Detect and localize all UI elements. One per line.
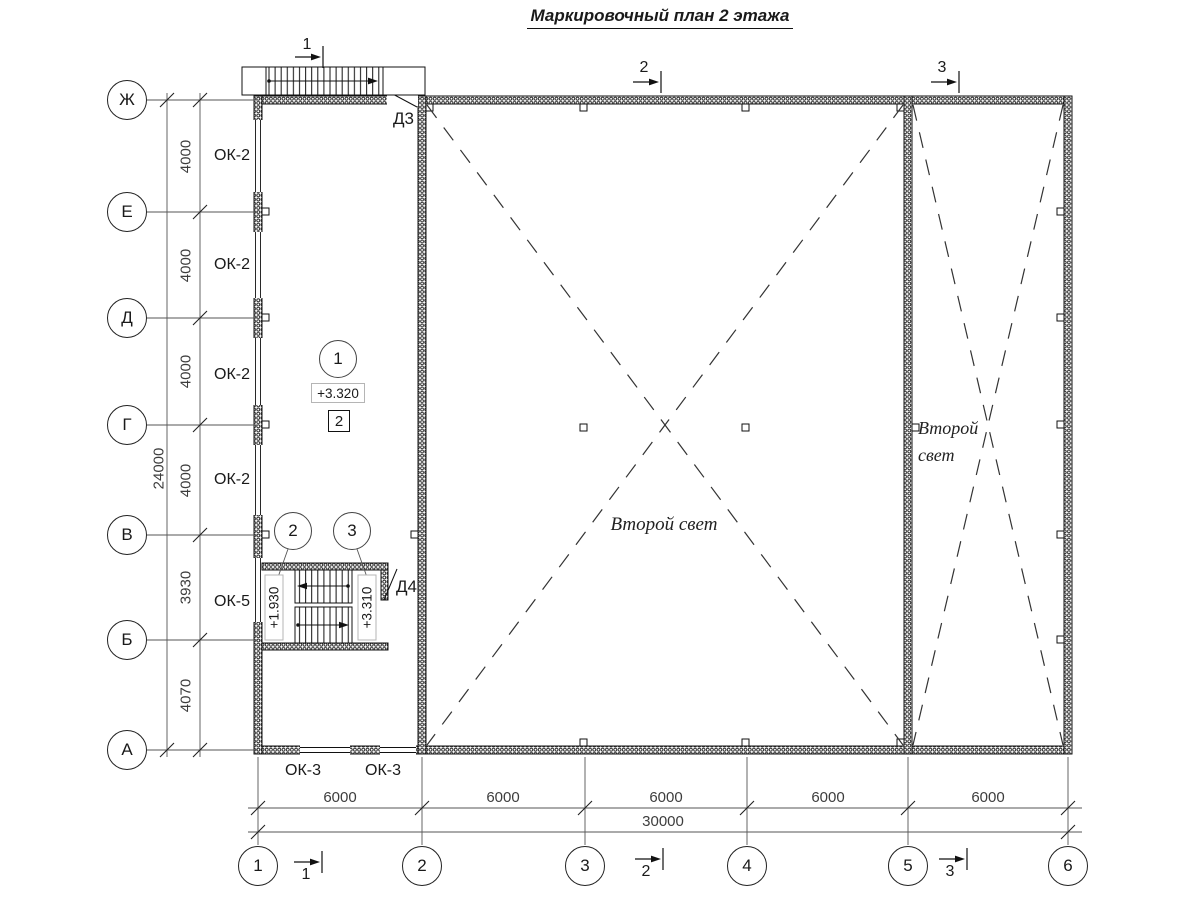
axis-col-5: 5	[888, 846, 928, 886]
dim-left-3: 4000	[178, 342, 195, 402]
dim-left-6: 4070	[178, 666, 195, 726]
stair-balloon-2: 2	[274, 512, 312, 550]
dim-bottom-total: 30000	[628, 813, 698, 830]
window-mark-ok3-1: ОК-3	[279, 762, 327, 780]
dim-left-2: 4000	[178, 236, 195, 296]
axis-col-2: 2	[402, 846, 442, 886]
second-light-label-right-1: Второй	[918, 418, 988, 439]
axis-row-e: Е	[107, 192, 147, 232]
axis-row-b: Б	[107, 620, 147, 660]
drawing-title-text: Маркировочный план 2 этажа	[527, 6, 794, 29]
section-3-bottom-num: 3	[940, 863, 960, 881]
dim-bottom-5: 6000	[958, 789, 1018, 806]
window-mark-ok5: ОК-5	[208, 593, 256, 611]
dim-left-5: 3930	[178, 558, 195, 618]
axis-row-zh: Ж	[107, 80, 147, 120]
window-mark-ok2-4: ОК-2	[208, 471, 256, 489]
section-2-top-num: 2	[634, 59, 654, 77]
second-light-label-right-2: свет	[918, 445, 988, 466]
exterior-stair	[242, 67, 425, 95]
axis-row-g: Г	[107, 405, 147, 445]
room-zone-box: 2	[328, 410, 350, 432]
room-level-mark: +3.320	[311, 383, 365, 403]
section-1-top-num: 1	[297, 36, 317, 54]
dim-bottom-1: 6000	[310, 789, 370, 806]
window-mark-ok2-3: ОК-2	[208, 366, 256, 384]
axis-col-1: 1	[238, 846, 278, 886]
dim-bottom-3: 6000	[636, 789, 696, 806]
section-3-top-num: 3	[932, 59, 952, 77]
stair-balloon-3: 3	[333, 512, 371, 550]
dim-left-1: 4000	[178, 127, 195, 187]
axis-col-4: 4	[727, 846, 767, 886]
window-mark-ok3-2: ОК-3	[359, 762, 407, 780]
dim-left-4: 4000	[178, 451, 195, 511]
axis-col-3: 3	[565, 846, 605, 886]
floor-plan-drawing: Маркировочный план 2 этажа Ж Е Д Г В Б А…	[0, 0, 1200, 900]
door-mark-d4: Д4	[396, 577, 417, 597]
window-mark-ok2-2: ОК-2	[208, 256, 256, 274]
dim-left-total: 24000	[151, 434, 168, 504]
axis-row-v: В	[107, 515, 147, 555]
stair-level-left: +1.930	[265, 575, 284, 641]
dim-bottom-2: 6000	[473, 789, 533, 806]
section-2-bottom-num: 2	[636, 863, 656, 881]
axis-row-d: Д	[107, 298, 147, 338]
window-mark-ok2-1: ОК-2	[208, 147, 256, 165]
left-axis-lines	[147, 93, 258, 757]
drawing-title: Маркировочный план 2 этажа	[120, 6, 1200, 29]
room-axis-balloon: 1	[319, 340, 357, 378]
axis-row-a: А	[107, 730, 147, 770]
axis-col-6: 6	[1048, 846, 1088, 886]
door-mark-d3: Д3	[393, 109, 414, 129]
second-light-label-main: Второй свет	[593, 514, 735, 536]
dim-bottom-4: 6000	[798, 789, 858, 806]
stair-level-right: +3.310	[358, 575, 377, 641]
section-1-bottom-num: 1	[296, 866, 316, 884]
